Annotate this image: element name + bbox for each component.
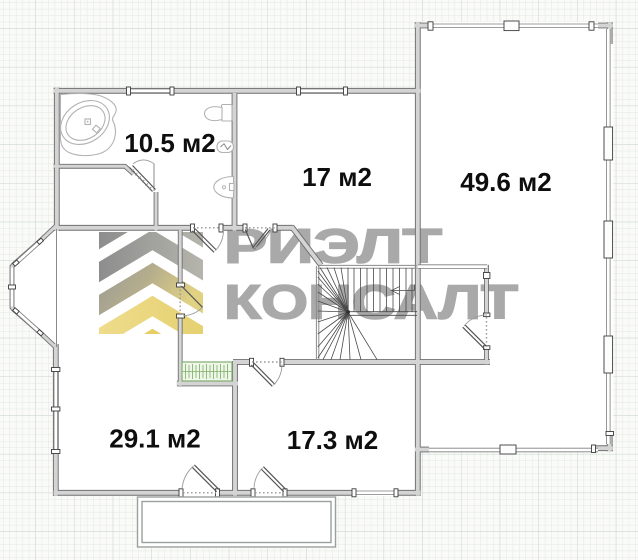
svg-text:17.3 м2: 17.3 м2	[287, 425, 379, 455]
svg-text:17 м2: 17 м2	[302, 162, 372, 192]
svg-text:10.5 м2: 10.5 м2	[124, 128, 216, 158]
svg-text:49.6 м2: 49.6 м2	[460, 167, 552, 197]
svg-text:29.1 м2: 29.1 м2	[109, 424, 201, 454]
svg-text:КОНСАЛТ: КОНСАЛТ	[224, 277, 518, 330]
